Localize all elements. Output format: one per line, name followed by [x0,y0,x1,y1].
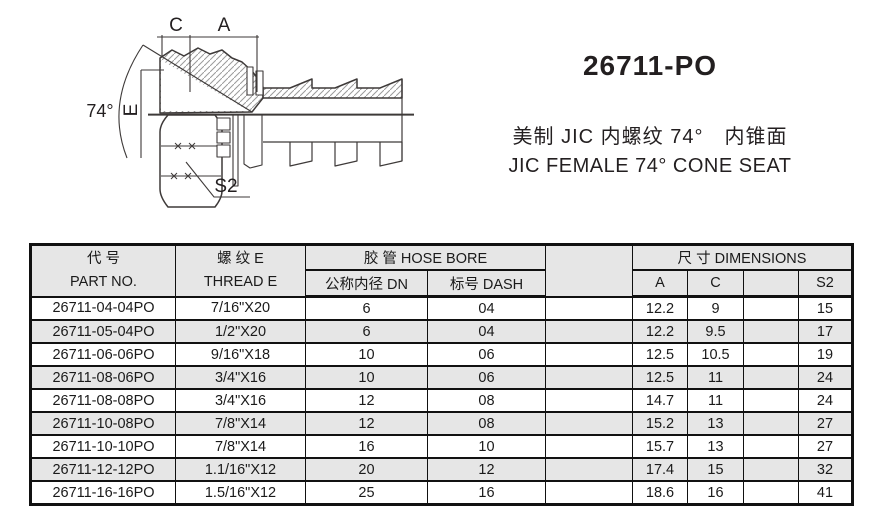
header-dash: 标号 DASH [428,270,546,297]
cell-dim-c: 10.5 [688,343,744,366]
header-hose-bore: 胶 管 HOSE BORE [306,245,546,271]
cell-dim-s2: 32 [799,458,853,481]
cell-dim-a: 15.7 [633,435,688,458]
cell-dim-blank [744,320,799,343]
cell-bore-dash: 04 [428,320,546,343]
header-thread-en: THREAD E [176,271,305,293]
cell-part-no: 26711-08-08PO [31,389,176,412]
spec-table: 代 号 PART NO. 螺 纹 E THREAD E 胶 管 HOSE BOR… [29,243,854,506]
table-row: 26711-04-04PO7/16"X2060412.2915 [31,297,853,321]
header-thread-zh: 螺 纹 E [176,248,305,270]
cell-dim-blank [744,458,799,481]
cell-part-no: 26711-06-06PO [31,343,176,366]
subtitle-chinese: 美制 JIC 内螺纹 74° 内锥面 [430,120,870,149]
cell-dim-blank [744,366,799,389]
cell-dim-blank [744,343,799,366]
cell-part-no: 26711-16-16PO [31,481,176,505]
cell-spacer [546,297,633,321]
dim-label-a: A [218,15,231,36]
cell-dim-c: 9 [688,297,744,321]
cell-dim-s2: 27 [799,412,853,435]
header-dn: 公称内径 DN [306,270,428,297]
header-part-no: 代 号 PART NO. [31,245,176,297]
cell-bore-dash: 08 [428,412,546,435]
cell-bore-dash: 06 [428,366,546,389]
cell-bore-dash: 10 [428,435,546,458]
cell-thread-e: 3/4"X16 [176,366,306,389]
header-spacer [546,245,633,297]
table-row: 26711-10-10PO7/8"X14161015.71327 [31,435,853,458]
table-row: 26711-16-16PO1.5/16"X12251618.61641 [31,481,853,505]
cell-dim-c: 9.5 [688,320,744,343]
cell-dim-s2: 15 [799,297,853,321]
cell-part-no: 26711-10-10PO [31,435,176,458]
cell-dim-s2: 17 [799,320,853,343]
cell-bore-dn: 16 [306,435,428,458]
cell-spacer [546,343,633,366]
header-dim-blank [744,270,799,297]
cell-dim-blank [744,435,799,458]
cell-dim-a: 12.2 [633,297,688,321]
cell-bore-dn: 12 [306,412,428,435]
header-dim-s2: S2 [799,270,853,297]
cell-bore-dn: 25 [306,481,428,505]
cell-dim-a: 14.7 [633,389,688,412]
cell-part-no: 26711-04-04PO [31,297,176,321]
catalog-page: C A E 74° S2 26711-PO 美制 JIC 内螺纹 74° 内锥面… [0,0,875,508]
cell-bore-dn: 10 [306,343,428,366]
cell-spacer [546,435,633,458]
cell-dim-c: 15 [688,458,744,481]
cell-bore-dash: 06 [428,343,546,366]
cell-thread-e: 3/4"X16 [176,389,306,412]
cell-bore-dn: 10 [306,366,428,389]
table-row: 26711-12-12PO1.1/16"X12201217.41532 [31,458,853,481]
cell-dim-blank [744,481,799,505]
cell-dim-s2: 24 [799,389,853,412]
cell-spacer [546,412,633,435]
header-dim-c: C [688,270,744,297]
fitting-cross-section [148,48,414,207]
title-block: 26711-PO 美制 JIC 内螺纹 74° 内锥面 JIC FEMALE 7… [430,40,870,178]
header-thread: 螺 纹 E THREAD E [176,245,306,297]
table-row: 26711-05-04PO1/2"X2060412.29.517 [31,320,853,343]
cell-dim-c: 13 [688,435,744,458]
cell-spacer [546,458,633,481]
cell-bore-dn: 12 [306,389,428,412]
table-row: 26711-08-08PO3/4"X16120814.71124 [31,389,853,412]
cell-bore-dash: 12 [428,458,546,481]
table-row: 26711-10-08PO7/8"X14120815.21327 [31,412,853,435]
cell-dim-c: 11 [688,389,744,412]
technical-drawing: C A E 74° S2 [0,0,460,230]
cell-bore-dash: 04 [428,297,546,321]
dim-label-c: C [169,15,183,36]
table-body: 26711-04-04PO7/16"X2060412.291526711-05-… [31,297,853,505]
cell-dim-a: 12.5 [633,366,688,389]
subtitle-english: JIC FEMALE 74° CONE SEAT [430,155,870,178]
cell-dim-s2: 41 [799,481,853,505]
cell-spacer [546,481,633,505]
cell-dim-s2: 27 [799,435,853,458]
wrench-size-label: S2 [214,176,237,197]
cell-dim-a: 12.5 [633,343,688,366]
cell-bore-dn: 6 [306,320,428,343]
cell-spacer [546,366,633,389]
cell-spacer [546,389,633,412]
cell-dim-a: 15.2 [633,412,688,435]
cell-thread-e: 1/2"X20 [176,320,306,343]
angle-label: 74° [86,101,113,121]
cell-thread-e: 1.5/16"X12 [176,481,306,505]
cell-dim-c: 13 [688,412,744,435]
cell-dim-a: 18.6 [633,481,688,505]
cell-bore-dn: 20 [306,458,428,481]
cell-bore-dn: 6 [306,297,428,321]
header-dimensions: 尺 寸 DIMENSIONS [633,245,853,271]
cell-thread-e: 7/8"X14 [176,435,306,458]
cell-dim-a: 17.4 [633,458,688,481]
cell-part-no: 26711-05-04PO [31,320,176,343]
cell-dim-s2: 19 [799,343,853,366]
cell-thread-e: 7/16"X20 [176,297,306,321]
cell-dim-c: 11 [688,366,744,389]
part-series-title: 26711-PO [430,50,870,82]
cell-dim-blank [744,297,799,321]
table-row: 26711-08-06PO3/4"X16100612.51124 [31,366,853,389]
cell-part-no: 26711-10-08PO [31,412,176,435]
cell-thread-e: 7/8"X14 [176,412,306,435]
cell-part-no: 26711-08-06PO [31,366,176,389]
cell-bore-dash: 16 [428,481,546,505]
cell-dim-c: 16 [688,481,744,505]
table-row: 26711-06-06PO9/16"X18100612.510.519 [31,343,853,366]
cell-bore-dash: 08 [428,389,546,412]
cell-dim-blank [744,389,799,412]
cell-part-no: 26711-12-12PO [31,458,176,481]
cell-dim-blank [744,412,799,435]
header-dim-a: A [633,270,688,297]
dim-label-e: E [121,104,142,117]
cell-dim-a: 12.2 [633,320,688,343]
cell-thread-e: 9/16"X18 [176,343,306,366]
header-part-no-zh: 代 号 [32,248,175,270]
cell-thread-e: 1.1/16"X12 [176,458,306,481]
cell-spacer [546,320,633,343]
cell-dim-s2: 24 [799,366,853,389]
header-part-no-en: PART NO. [32,271,175,293]
